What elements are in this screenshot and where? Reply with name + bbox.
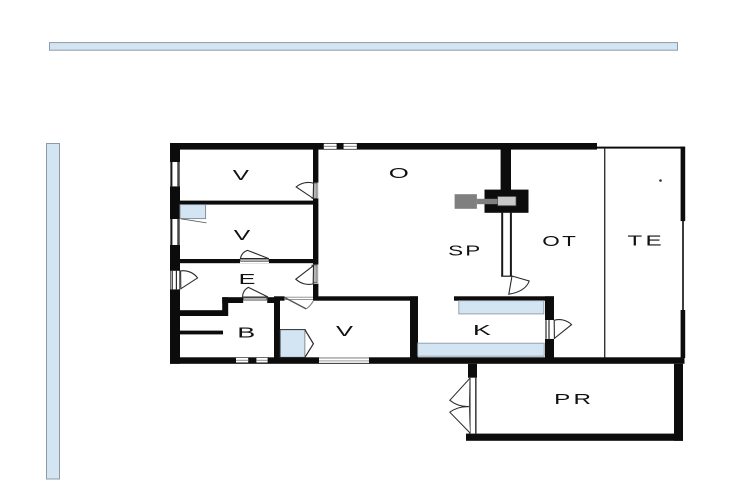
svg-text:E: E xyxy=(239,271,256,288)
svg-text:OT: OT xyxy=(542,233,578,249)
svg-text:V: V xyxy=(234,227,251,244)
svg-text:B: B xyxy=(237,324,255,341)
svg-text:V: V xyxy=(233,167,250,183)
svg-text:V: V xyxy=(336,323,353,339)
svg-text:O: O xyxy=(389,165,409,181)
svg-text:K: K xyxy=(473,321,492,338)
svg-text:PR: PR xyxy=(554,391,594,407)
svg-text:TE: TE xyxy=(627,233,665,249)
svg-text:SP: SP xyxy=(448,243,482,259)
